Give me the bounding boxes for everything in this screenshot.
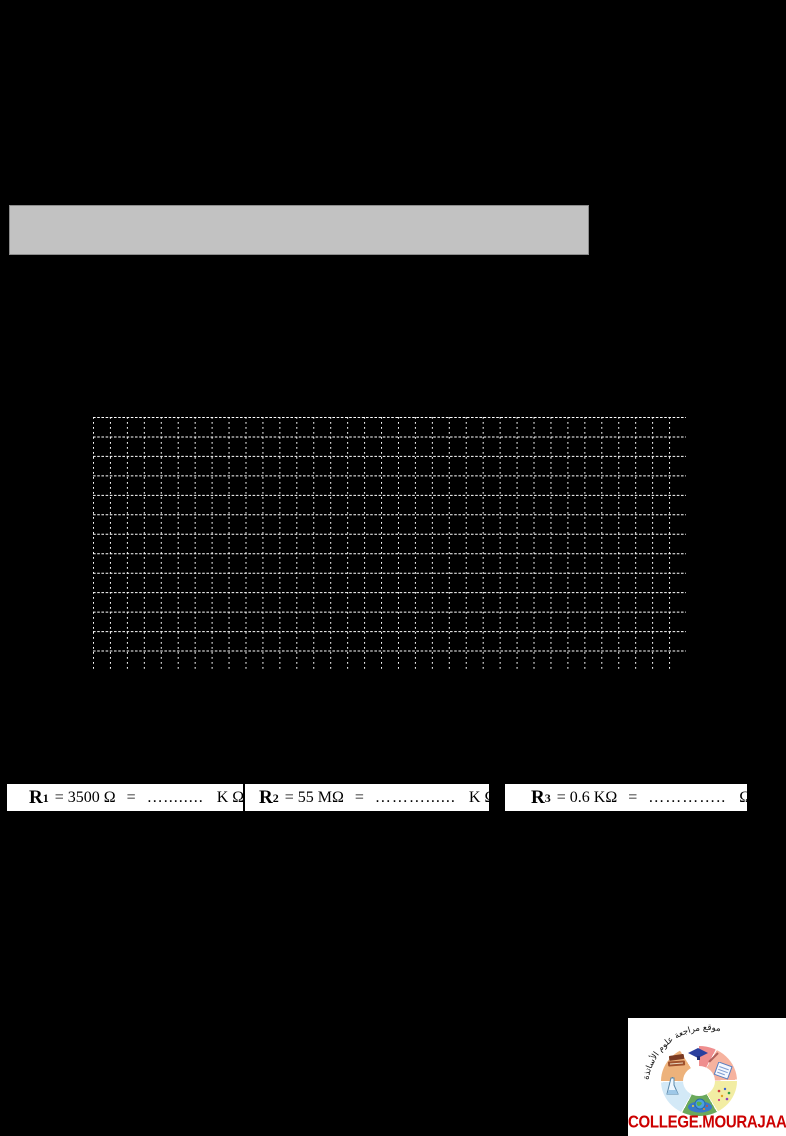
chemistry-flask-icon xyxy=(665,1077,680,1097)
target-unit: K Ω xyxy=(217,789,244,807)
target-unit: Ω xyxy=(739,789,749,807)
given-value: = 3500 Ω xyxy=(55,789,116,807)
globe-icon xyxy=(687,1098,713,1113)
confetti-icon xyxy=(716,1087,732,1103)
dashed-answer-grid xyxy=(93,417,686,670)
answer-blank-dots: ………...... xyxy=(375,789,456,807)
resistance-conversion-box-r3: R3 = 0.6 KΩ = ………….. Ω xyxy=(503,782,749,813)
resistor-symbol: R xyxy=(29,787,43,809)
grid-lines xyxy=(93,417,686,670)
resistance-conversion-box-r2: R2 = 55 MΩ = ………...... K Ω xyxy=(243,782,491,813)
resistor-symbol: R xyxy=(259,787,273,809)
equals-sign: = xyxy=(355,789,364,807)
answer-blank-dots: ………….. xyxy=(648,789,726,807)
website-text: COLLEGE.MOURAJAA.COM xyxy=(628,1112,786,1132)
logo-ring xyxy=(661,1046,737,1116)
target-unit: K Ω xyxy=(469,789,491,807)
college-mourajaa-logo: موقع مراجعة علوم الأساتذة xyxy=(628,1018,786,1136)
given-value: = 0.6 KΩ xyxy=(557,789,617,807)
resistor-symbol: R xyxy=(531,787,545,809)
equals-sign: = xyxy=(127,789,136,807)
answer-blank-dots: …........ xyxy=(147,789,204,807)
resistance-conversion-box-r1: R1 = 3500 Ω = …........ K Ω xyxy=(5,782,249,813)
title-bar-placeholder xyxy=(9,205,589,255)
given-value: = 55 MΩ xyxy=(285,789,344,807)
logo-ring-hole xyxy=(683,1066,715,1096)
books-icon xyxy=(667,1053,687,1069)
scanned-worksheet-page: R1 = 3500 Ω = …........ K Ω R2 = 55 MΩ =… xyxy=(0,0,786,1136)
notebook-icon xyxy=(713,1062,733,1080)
equals-sign: = xyxy=(628,789,637,807)
